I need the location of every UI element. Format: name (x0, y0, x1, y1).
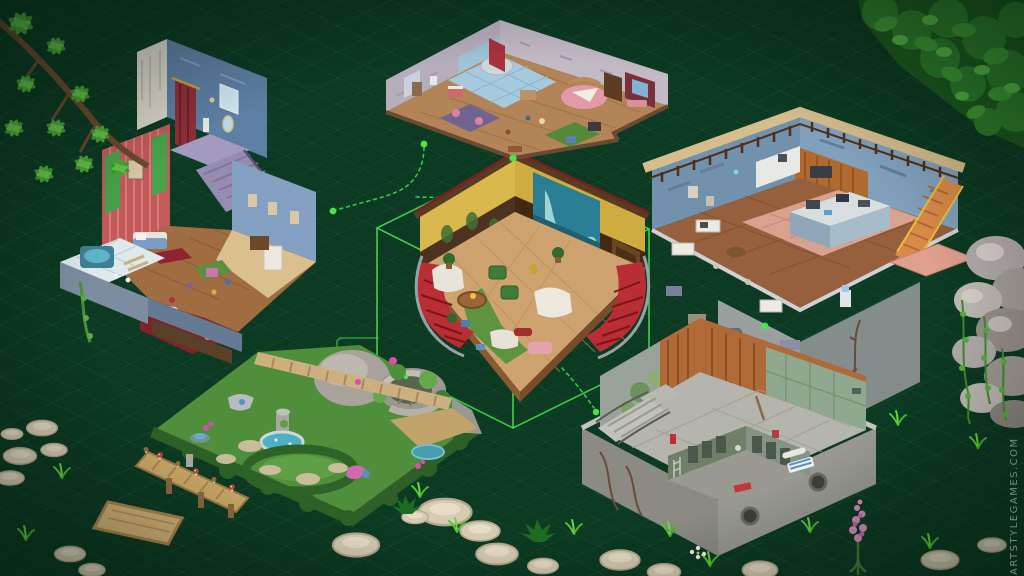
watermark-text: ARTSTYLEGAMES.COM (1009, 437, 1020, 575)
vignette-overlay (0, 0, 1024, 576)
game-map-screen: ARTSTYLEGAMES.COM (0, 0, 1024, 576)
game-map-canvas: ARTSTYLEGAMES.COM (0, 0, 1024, 576)
